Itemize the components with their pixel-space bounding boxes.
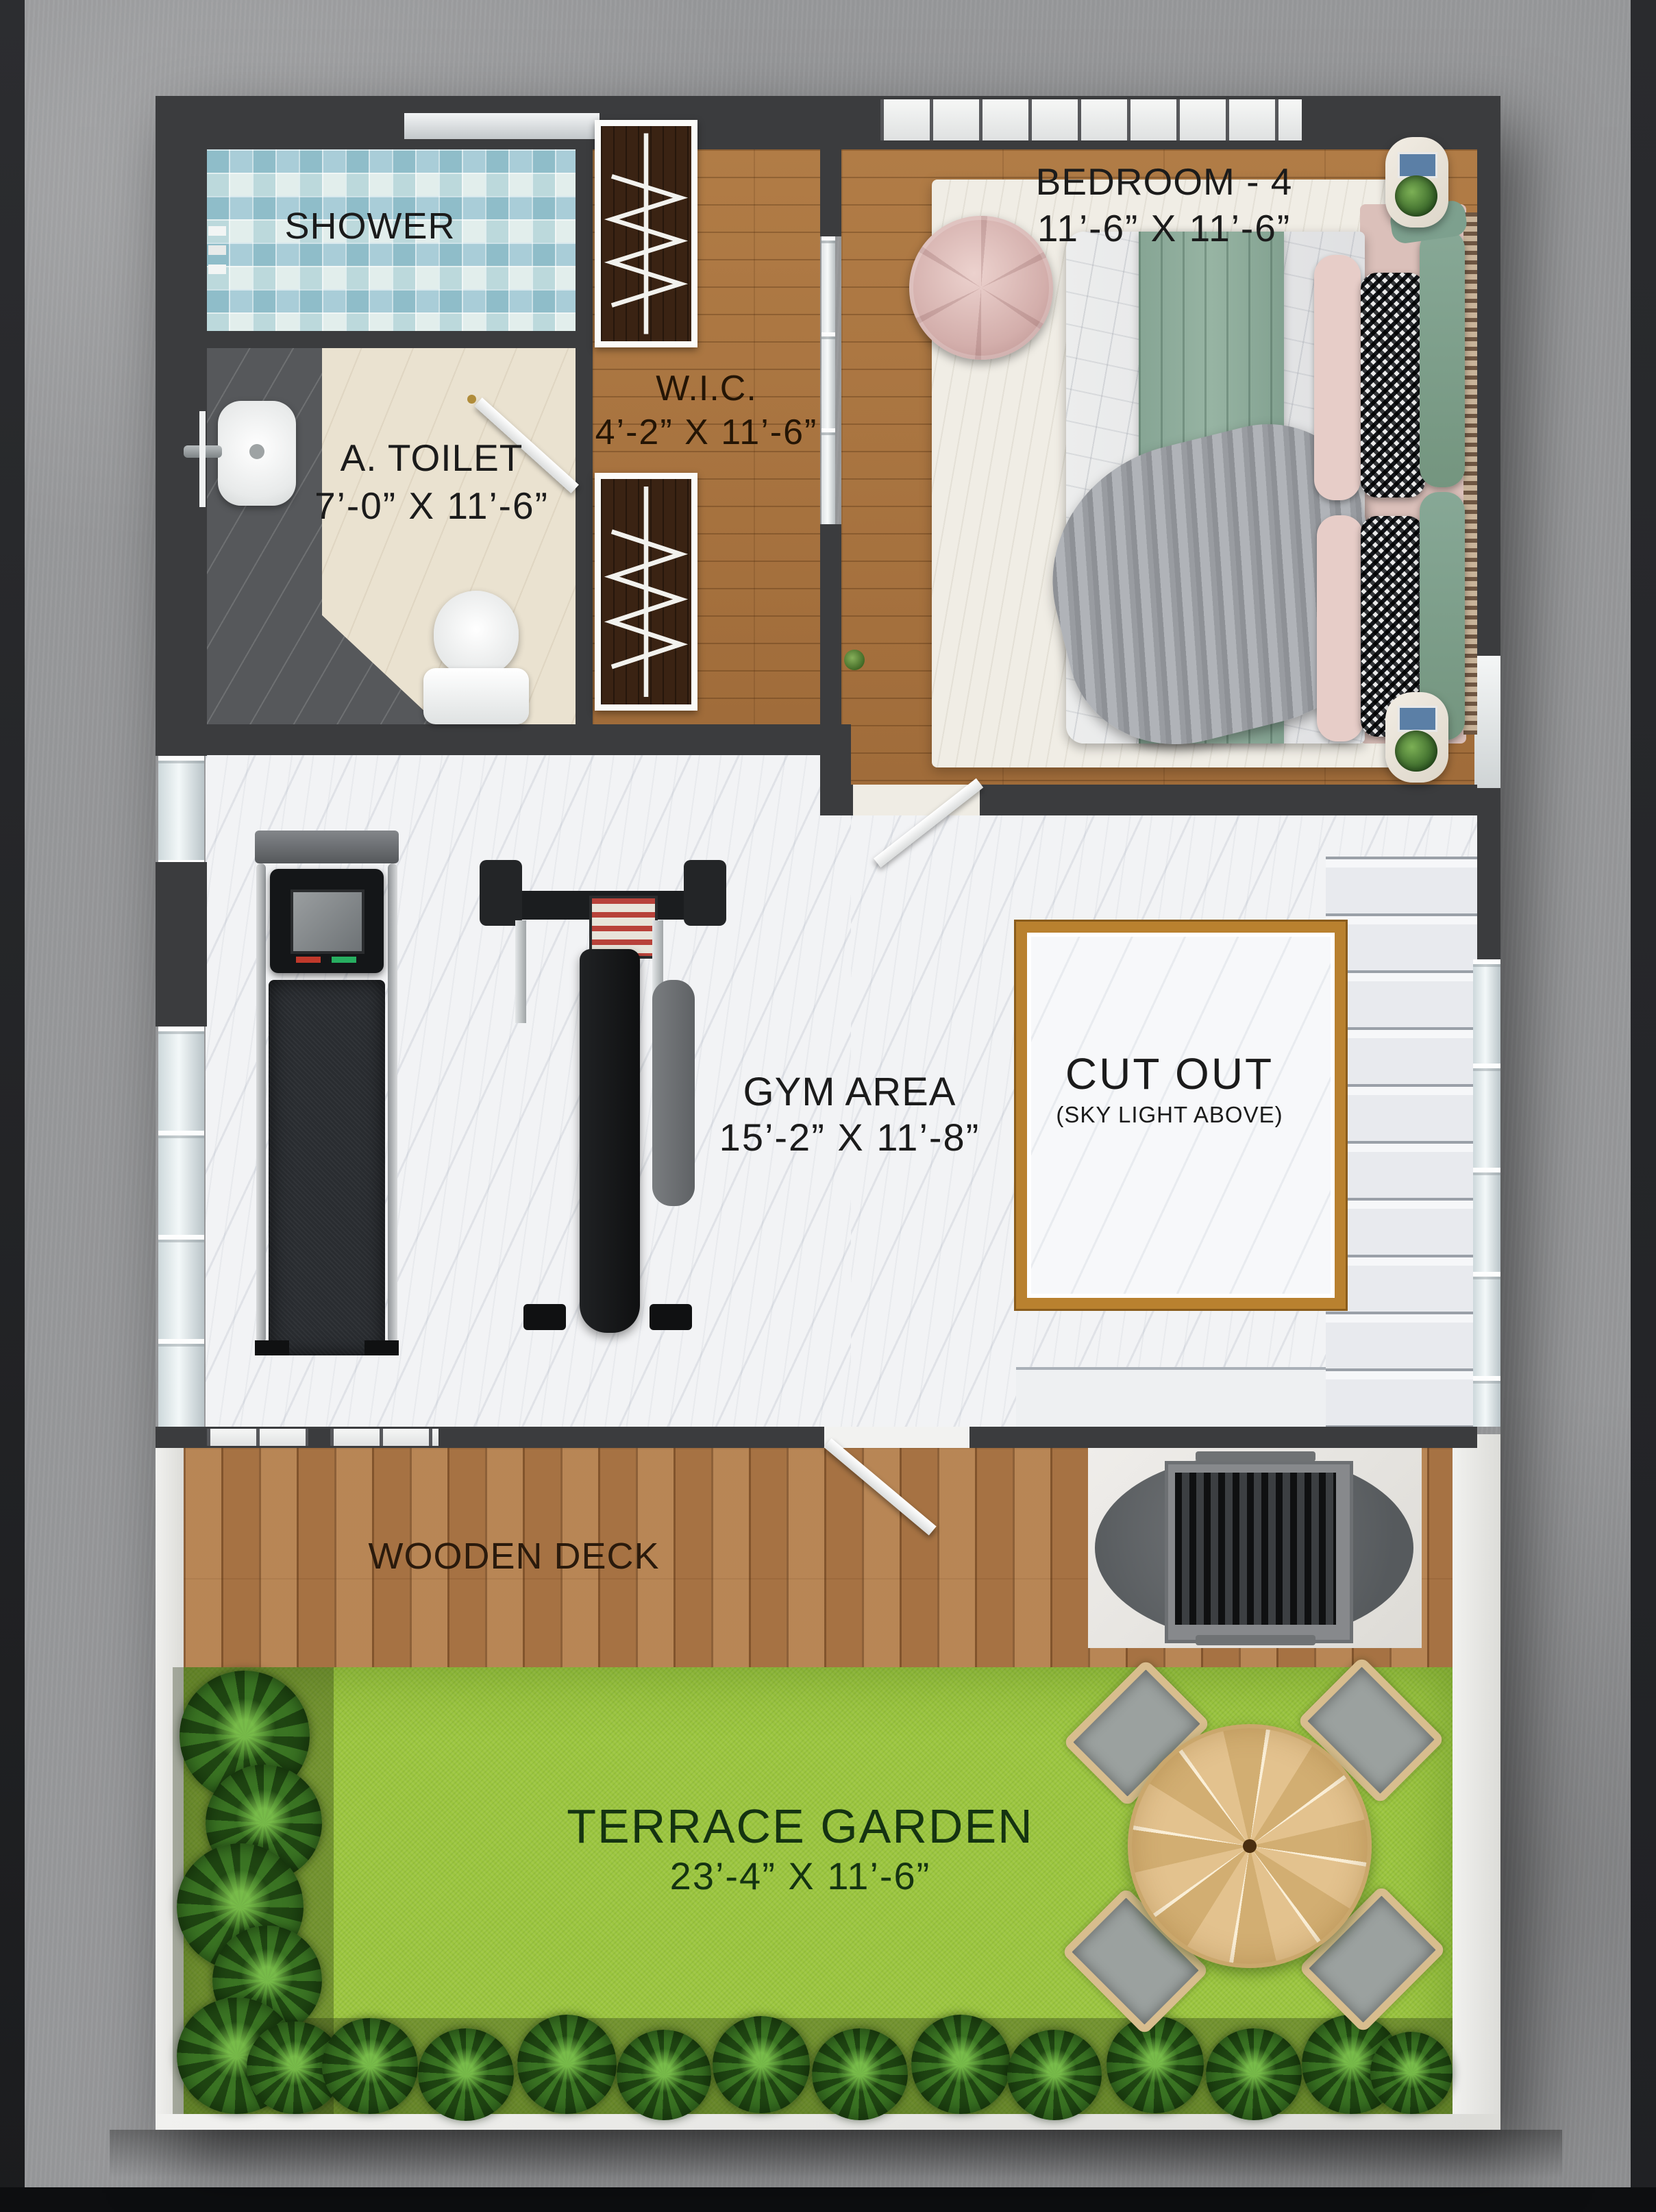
headboard (1463, 212, 1477, 735)
door-plant-icon (844, 650, 865, 670)
shower-head-icon (208, 226, 226, 236)
toilet-dims: 7’-0” X 11’-6” (274, 485, 589, 526)
wardrobe-interior (601, 479, 691, 704)
gym-side-pad (652, 980, 695, 1206)
wall-gym-deck-right (969, 1427, 1477, 1448)
wall-below-bedroom-right (980, 785, 1477, 815)
treadmill (255, 831, 399, 1355)
wall-below-bedroom-left (820, 785, 853, 815)
basin-drain-icon (249, 444, 264, 459)
wic-label: W.I.C. (593, 369, 820, 408)
frame-edge-left (0, 0, 25, 2212)
deck-label: WOODEN DECK (343, 1536, 685, 1576)
stair-lower-landing (1016, 1367, 1326, 1429)
treadmill-foot (255, 1340, 289, 1355)
shrub (713, 2016, 810, 2113)
window-sill-shower (404, 113, 600, 139)
gym-bench (580, 949, 640, 1333)
wall-wic-bedroom-lower (820, 524, 841, 724)
shrub (911, 2015, 1011, 2114)
table-center-icon (1243, 1839, 1257, 1853)
wall-below-toilet-wic (156, 724, 851, 755)
pillow-patterned-1 (1361, 273, 1425, 497)
wall-shower-toilet-divider (206, 331, 576, 348)
wall-right-upper (1477, 96, 1500, 656)
parapet-bottom (156, 2114, 1500, 2130)
shower-label: SHOWER (240, 206, 500, 247)
plant-icon (1395, 175, 1437, 217)
grill-handle-top (1196, 1451, 1315, 1462)
plant-icon (1395, 730, 1437, 772)
grill-handle-bottom (1196, 1635, 1315, 1645)
treadmill-rail-right (388, 863, 397, 1343)
gym-foot-left (523, 1304, 566, 1330)
multi-gym-machine (480, 860, 726, 1333)
shrub (418, 2028, 514, 2121)
gym-pad-right (684, 860, 726, 926)
shrub (617, 2030, 711, 2120)
toilet-tank (423, 668, 529, 724)
pillow-green-1 (1420, 230, 1465, 487)
barbecue-grill (1165, 1461, 1353, 1643)
gym-pad-left (480, 860, 522, 926)
bedroom-dims: 11’-6” X 11’-6” (1000, 208, 1328, 248)
treadmill-buttons-icon (296, 957, 321, 963)
shrub (1370, 2032, 1453, 2114)
nightstand-bottom (1385, 692, 1448, 783)
treadmill-console (270, 869, 384, 973)
window-deck-2 (330, 1429, 438, 1446)
shrub (517, 2015, 617, 2114)
toilet-bowl (434, 591, 519, 676)
book-icon (1398, 706, 1437, 732)
frame-edge-bottom (0, 2187, 1656, 2212)
garden-label: TERRACE GARDEN (595, 1799, 1006, 1854)
shrub (1107, 2016, 1204, 2113)
wardrobe-interior (601, 126, 691, 341)
toilet-door-knob-icon (467, 395, 476, 404)
shrub (322, 2018, 418, 2114)
wic-dims: 4’-2” X 11’-6” (579, 413, 834, 452)
treadmill-rail-left (256, 863, 266, 1343)
shrub (812, 2028, 908, 2120)
treadmill-frame-top (255, 831, 399, 863)
parapet-right (1453, 1434, 1500, 2130)
wall-right-mid (1477, 788, 1500, 959)
gym-label: GYM AREA (692, 1070, 1007, 1113)
wall-wic-bedroom-upper (820, 149, 841, 236)
deck-door-threshold (824, 1427, 969, 1448)
book-icon (1398, 152, 1437, 178)
staircase-steps (1326, 857, 1477, 1427)
window-top-bedroom (880, 99, 1302, 140)
floor-plan-render: SHOWER A. TOILET 7’-0” X 11’-6” W.I.C. 4… (0, 0, 1656, 2212)
frame-edge-right (1631, 0, 1656, 2212)
cutout-label: CUT OUT (998, 1050, 1341, 1098)
gym-foot-right (650, 1304, 692, 1330)
window-deck-1 (207, 1429, 308, 1446)
nightstand-top (1385, 137, 1448, 228)
hanger-rail-icon (601, 479, 691, 704)
wardrobe-unit-top (595, 120, 697, 347)
wall-left-mid (156, 862, 207, 1027)
garden-round-table (1128, 1724, 1372, 1968)
treadmill-screen (291, 889, 364, 954)
grill-slats (1175, 1473, 1336, 1625)
toilet-label: A. TOILET (288, 437, 576, 478)
wic-sliding-glass-door (821, 236, 835, 524)
pillow-pink-1 (1314, 255, 1361, 500)
shrub (1206, 2028, 1302, 2120)
gym-dims: 15’-2” X 11’-8” (685, 1116, 1014, 1158)
window-left-lower (158, 1027, 204, 1434)
pillow-pink-2 (1317, 515, 1363, 741)
hanger-rail-icon (601, 126, 691, 341)
bedroom-label: BEDROOM - 4 (1000, 162, 1328, 201)
window-right-bedroom (1474, 656, 1500, 788)
cutout-note: (SKY LIGHT ABOVE) (998, 1101, 1341, 1129)
window-left-upper (158, 756, 204, 862)
treadmill-belt (269, 980, 385, 1355)
garden-dims: 23’-4” X 11’-6” (629, 1854, 972, 1897)
stair-glass-railing (1473, 959, 1500, 1427)
gym-post-left (515, 920, 526, 1023)
plan-bottom-shade (110, 2130, 1562, 2178)
bed (1066, 204, 1477, 744)
towel-rail-icon (199, 411, 206, 507)
shrub (1007, 2030, 1102, 2120)
wardrobe-unit-bottom (595, 473, 697, 711)
